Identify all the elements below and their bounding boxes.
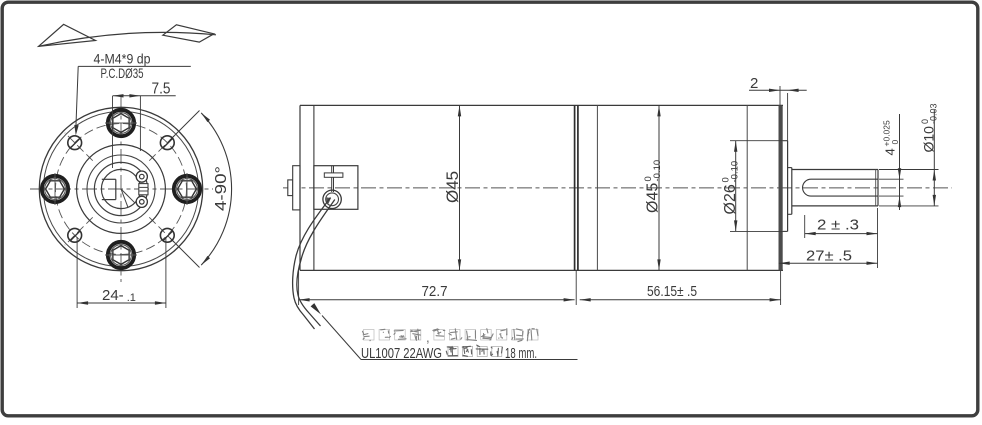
svg-text:UL1007 22AWG: UL1007 22AWG (361, 345, 442, 362)
svg-text:-0.10: -0.10 (652, 160, 663, 182)
svg-text:56.15± .5: 56.15± .5 (647, 284, 697, 300)
svg-text:4: 4 (883, 148, 898, 155)
svg-text:27± .5: 27± .5 (806, 248, 852, 265)
svg-text:,: , (426, 329, 430, 345)
svg-text:72.7: 72.7 (422, 283, 448, 300)
svg-text:-0.10: -0.10 (730, 161, 741, 183)
svg-text:2: 2 (750, 75, 758, 92)
svg-text:4-M4*9 dp: 4-M4*9 dp (94, 51, 151, 67)
svg-text:7.5: 7.5 (152, 81, 171, 98)
svg-text:Ø26: Ø26 (722, 184, 739, 214)
svg-text:0: 0 (890, 140, 900, 145)
svg-text:-0.03: -0.03 (929, 103, 939, 124)
svg-text:Ø45: Ø45 (645, 183, 662, 213)
svg-text:4-90°: 4-90° (213, 166, 230, 211)
svg-text:P.C.DØ35: P.C.DØ35 (101, 66, 144, 81)
svg-text:18 mm.: 18 mm. (505, 345, 537, 362)
svg-text:Ø45: Ø45 (443, 171, 462, 203)
svg-text:Ø10: Ø10 (921, 126, 937, 153)
svg-text:2 ± .3: 2 ± .3 (817, 217, 859, 234)
